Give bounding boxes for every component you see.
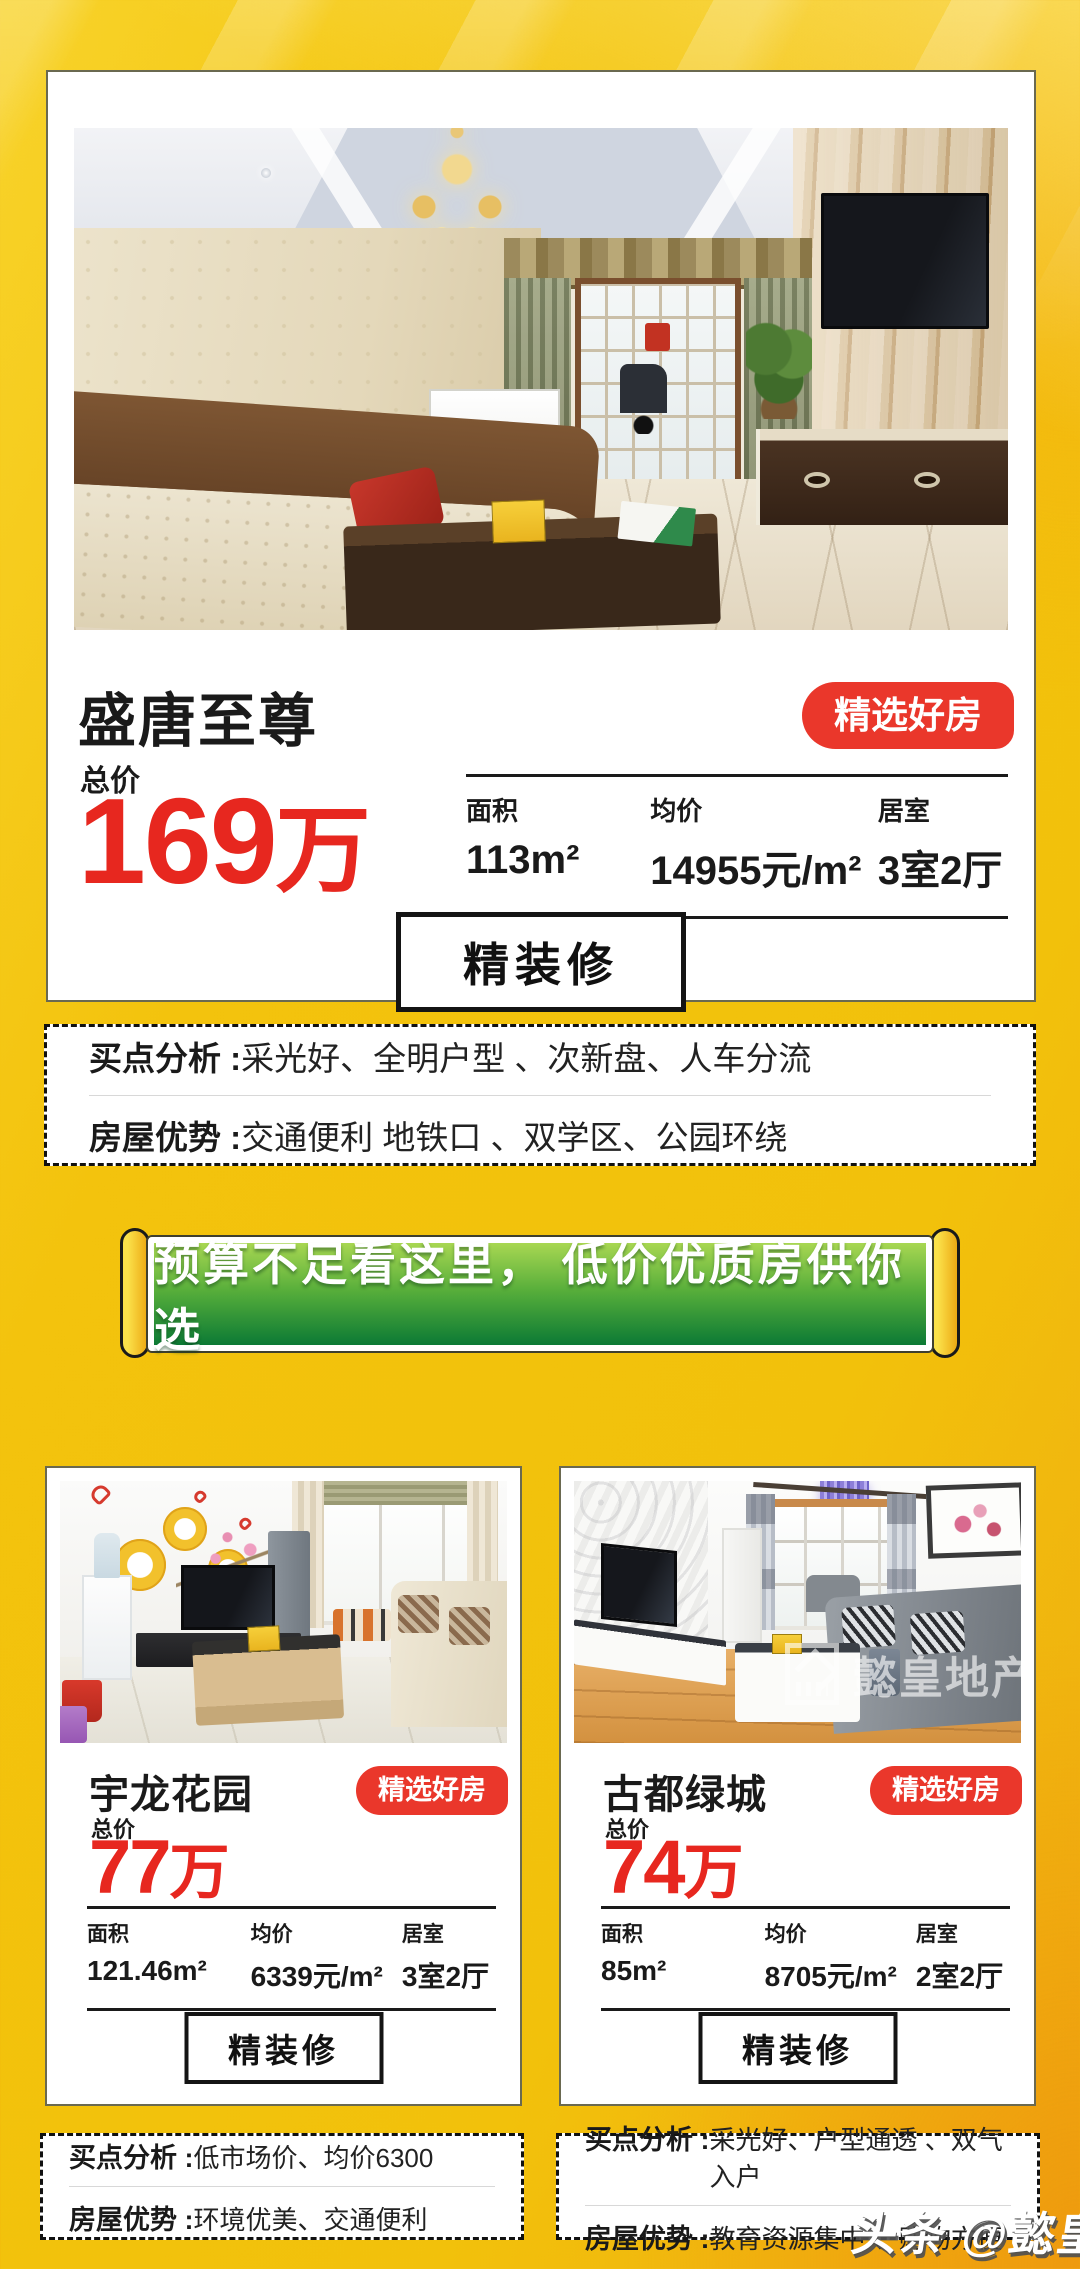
tv [821, 193, 989, 329]
agency-sign [492, 499, 546, 543]
analysis-row-advantages: 房屋优势 : 环境优美、交通便利 [69, 2186, 495, 2248]
total-price: 74万 [603, 1830, 744, 1906]
stat-rooms: 居室 3室2厅 [878, 791, 1008, 896]
stat-unit-price: 均价 8705元/m² [765, 1918, 916, 1995]
price-unit: 万 [684, 1839, 744, 1906]
papers-folder [618, 500, 696, 545]
drawer-handle [914, 472, 940, 488]
stat-area: 面积 113m² [466, 791, 650, 896]
listing-photo-gudu[interactable]: 懿皇地产 [574, 1481, 1021, 1743]
scroll-pole-right [930, 1228, 960, 1358]
listing-card-gudu[interactable]: 懿皇地产 古都绿城 精选好房 总价 74万 面积 85m² 均价 8705元/m… [559, 1466, 1036, 2106]
media-console [756, 429, 1008, 524]
purple-bucket [60, 1706, 87, 1743]
total-price: 169万 [78, 780, 371, 902]
listing-stats: 面积 85m² 均价 8705元/m² 居室 2室2厅 [601, 1906, 1010, 2011]
listing-photo-yulong[interactable] [60, 1481, 507, 1743]
listing-title: 盛唐至尊 [78, 674, 318, 758]
agency-watermark-text: 懿皇地产 [853, 1642, 1021, 1706]
cabinet-door [722, 1528, 762, 1643]
cushion [398, 1595, 439, 1633]
stat-rooms: 居室 2室2厅 [916, 1918, 1010, 1995]
analysis-row-selling-points: 买点分析 : 采光好、户型通透 、双气入户 [585, 2107, 1011, 2205]
door-decoration [645, 323, 670, 351]
analysis-row-selling-points: 买点分析 : 采光好、全明户型 、次新盘、人车分流 [89, 1017, 991, 1095]
photo-watermark: 懿皇地产 [785, 1642, 1021, 1706]
coffee-table [343, 513, 720, 630]
featured-badge: 精选好房 [802, 682, 1014, 749]
decoration-tag: 精装修 [184, 2012, 383, 2084]
water-bottle [94, 1533, 121, 1578]
analysis-row-selling-points: 买点分析 : 低市场价、均价6300 [69, 2125, 495, 2186]
featured-badge: 精选好房 [870, 1766, 1022, 1815]
price-value: 169 [78, 773, 276, 909]
promo-banner: 预算不足看这里， 低价优质房供你选 [108, 1226, 972, 1362]
price-unit: 万 [170, 1839, 230, 1906]
decoration-tag: 精装修 [698, 2012, 897, 2084]
promo-banner-text: 预算不足看这里， 低价优质房供你选 [154, 1228, 926, 1360]
featured-listing-card[interactable]: 盛唐至尊 精选好房 总价 169万 面积 113m² 均价 14955元/m² … [46, 70, 1036, 1002]
analysis-box-yulong: 买点分析 : 低市场价、均价6300 房屋优势 : 环境优美、交通便利 [40, 2133, 524, 2240]
water-dispenser [82, 1575, 131, 1680]
agency-logo-icon [785, 1643, 839, 1705]
scroll-pole-left [120, 1228, 150, 1358]
tv [181, 1565, 275, 1631]
tv [601, 1543, 677, 1627]
ottoman [333, 1609, 391, 1640]
listing-stats: 面积 121.46m² 均价 6339元/m² 居室 3室2厅 [87, 1906, 496, 2011]
stat-unit-price: 均价 6339元/m² [251, 1918, 402, 1995]
coffee-table [192, 1634, 344, 1725]
analysis-row-advantages: 房屋优势 : 交通便利 地铁口 、双学区、公园环绕 [89, 1095, 991, 1174]
decoration-tag: 精装修 [396, 912, 686, 1012]
flower-painting [926, 1482, 1021, 1559]
stat-area: 面积 121.46m² [87, 1918, 251, 1995]
drawer-handle [804, 472, 830, 488]
stroller [620, 364, 667, 434]
total-price: 77万 [89, 1830, 230, 1906]
price-value: 77 [89, 1825, 170, 1910]
stat-unit-price: 均价 14955元/m² [650, 791, 878, 896]
sofa [391, 1581, 507, 1728]
roman-shade [315, 1481, 476, 1505]
downlight [261, 168, 271, 178]
listing-card-yulong[interactable]: 宇龙花园 精选好房 总价 77万 面积 121.46m² 均价 6339元/m²… [45, 1466, 522, 2106]
stat-area: 面积 85m² [601, 1918, 765, 1995]
cushion [449, 1607, 490, 1645]
potted-plant [746, 319, 811, 419]
agency-sign [247, 1626, 281, 1653]
listing-stats: 面积 113m² 均价 14955元/m² 居室 3室2厅 [466, 774, 1008, 919]
price-unit: 万 [276, 798, 371, 904]
promo-banner-body: 预算不足看这里， 低价优质房供你选 [148, 1237, 932, 1351]
featured-badge: 精选好房 [356, 1766, 508, 1815]
price-value: 74 [603, 1825, 684, 1910]
page-watermark: 头条 @懿皇地产 [847, 2198, 1080, 2264]
featured-analysis-box: 买点分析 : 采光好、全明户型 、次新盘、人车分流 房屋优势 : 交通便利 地铁… [44, 1024, 1036, 1166]
stat-rooms: 居室 3室2厅 [402, 1918, 496, 1995]
featured-listing-photo[interactable] [74, 128, 1008, 630]
